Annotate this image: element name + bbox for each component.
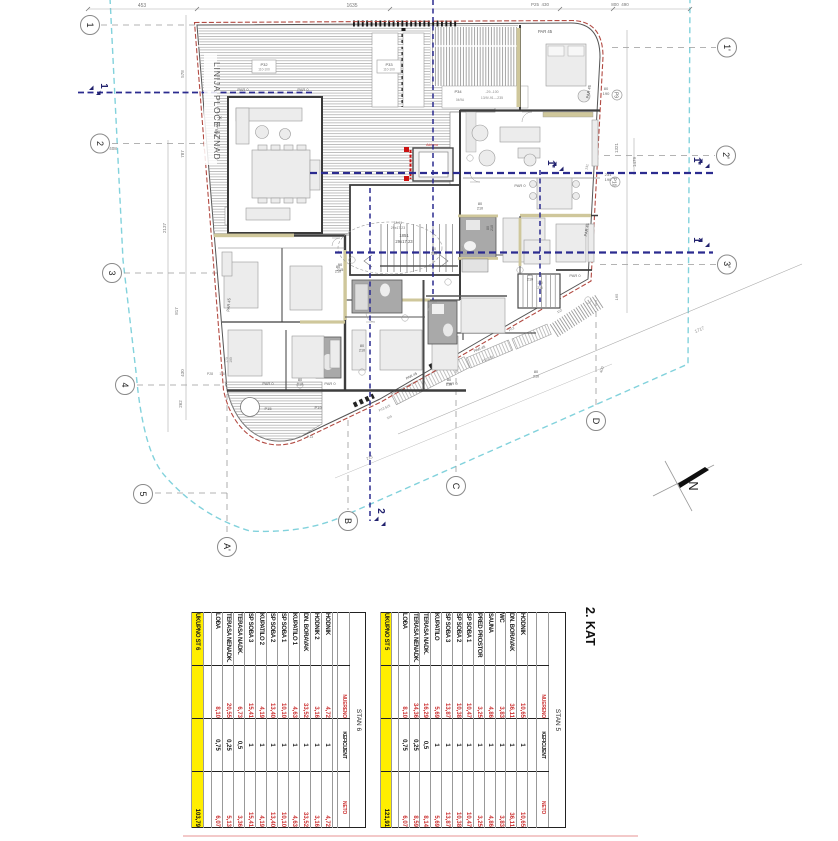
svg-text:400: 400 [598,365,605,374]
svg-text:29x17,23: 29x17,23 [395,239,413,244]
svg-text:210: 210 [431,252,437,256]
svg-text:80: 80 [528,273,532,277]
svg-text:P13: P13 [307,435,313,439]
svg-text:80: 80 [534,370,538,374]
svg-text:80: 80 [298,378,302,382]
svg-text:C: C [451,483,461,490]
svg-text:D: D [591,418,601,425]
svg-text:18,51: 18,51 [394,221,403,225]
svg-text:210: 210 [446,383,452,387]
svg-text:P10: P10 [611,178,617,187]
svg-text:5: 5 [138,491,148,496]
svg-text:P15: P15 [264,406,272,411]
svg-text:PAR 0: PAR 0 [262,381,274,386]
svg-text:178: 178 [219,372,225,376]
svg-text:2: 2 [375,508,386,514]
svg-text:4: 4 [120,382,130,387]
svg-text:110-100: 110-100 [258,68,270,72]
svg-text:P19: P19 [314,405,322,410]
svg-text:578: 578 [180,70,185,78]
svg-text:P9: P9 [613,92,619,98]
svg-text:13/9/-91---235: 13/9/-91---235 [481,96,503,100]
svg-text:A': A' [222,543,232,551]
svg-text:110-100: 110-100 [383,68,395,72]
svg-text:165: 165 [614,293,619,300]
svg-text:80: 80 [360,344,364,348]
svg-text:P32: P32 [260,62,268,67]
svg-text:262: 262 [178,400,183,408]
svg-text:408: 408 [109,146,117,151]
svg-text:210: 210 [490,225,494,231]
svg-text:-29--100: -29--100 [485,90,498,94]
svg-text:P13 515: P13 515 [378,404,391,413]
svg-text:1': 1' [722,44,732,51]
svg-text:P34: P34 [454,89,462,94]
svg-text:29x17,23: 29x17,23 [391,226,405,230]
svg-text:453: 453 [138,3,147,9]
svg-text:515: 515 [386,414,393,420]
svg-text:N: N [686,481,701,490]
svg-text:1: 1 [85,22,95,27]
svg-text:LINIJA PLOČE IZNAD: LINIJA PLOČE IZNAD [212,62,222,160]
svg-text:2137: 2137 [162,222,167,233]
svg-text:PAR 0: PAR 0 [569,273,581,278]
svg-text:215: 215 [337,267,344,272]
svg-text:80: 80 [432,247,436,251]
svg-text:1479: 1479 [632,156,637,167]
svg-text:2: 2 [95,141,105,146]
svg-text:B: B [343,518,353,524]
svg-text:PAR 0: PAR 0 [297,87,309,92]
svg-text:P33: P33 [385,62,393,67]
svg-text:PAR 0: PAR 0 [514,183,526,188]
svg-text:210: 210 [359,349,365,353]
svg-text:210: 210 [477,207,483,211]
svg-text:787: 787 [180,150,185,158]
svg-text:PAR 45: PAR 45 [538,29,553,34]
svg-text:80: 80 [447,378,451,382]
svg-text:152: 152 [556,308,563,314]
svg-text:210: 210 [297,383,303,387]
svg-text:817: 817 [174,307,179,315]
svg-text:190: 190 [229,357,233,363]
svg-text:P25 430: P25 430 [531,2,550,7]
svg-text:04/9A: 04/9A [456,98,465,102]
svg-text:1635: 1635 [346,3,357,9]
svg-text:PAR 0: PAR 0 [324,381,336,386]
svg-text:Adriana: Adriana [426,143,438,147]
svg-text:190: 190 [603,91,610,96]
svg-text:3': 3' [722,261,732,268]
svg-text:1717: 1717 [694,325,706,334]
svg-text:1: 1 [98,83,109,89]
svg-text:430: 430 [180,369,185,377]
svg-text:P28: P28 [207,372,213,376]
svg-text:190: 190 [605,177,612,182]
svg-text:210: 210 [533,375,539,379]
svg-text:1321: 1321 [614,142,619,153]
svg-text:2': 2' [721,152,731,159]
svg-text:3: 3 [107,270,117,275]
svg-text:P13: P13 [508,326,515,332]
svg-text:PAR 0: PAR 0 [237,87,249,92]
svg-text:1851: 1851 [399,233,409,238]
svg-text:210: 210 [527,278,533,282]
svg-text:800 490: 800 490 [611,2,629,7]
svg-text:80: 80 [478,202,482,206]
